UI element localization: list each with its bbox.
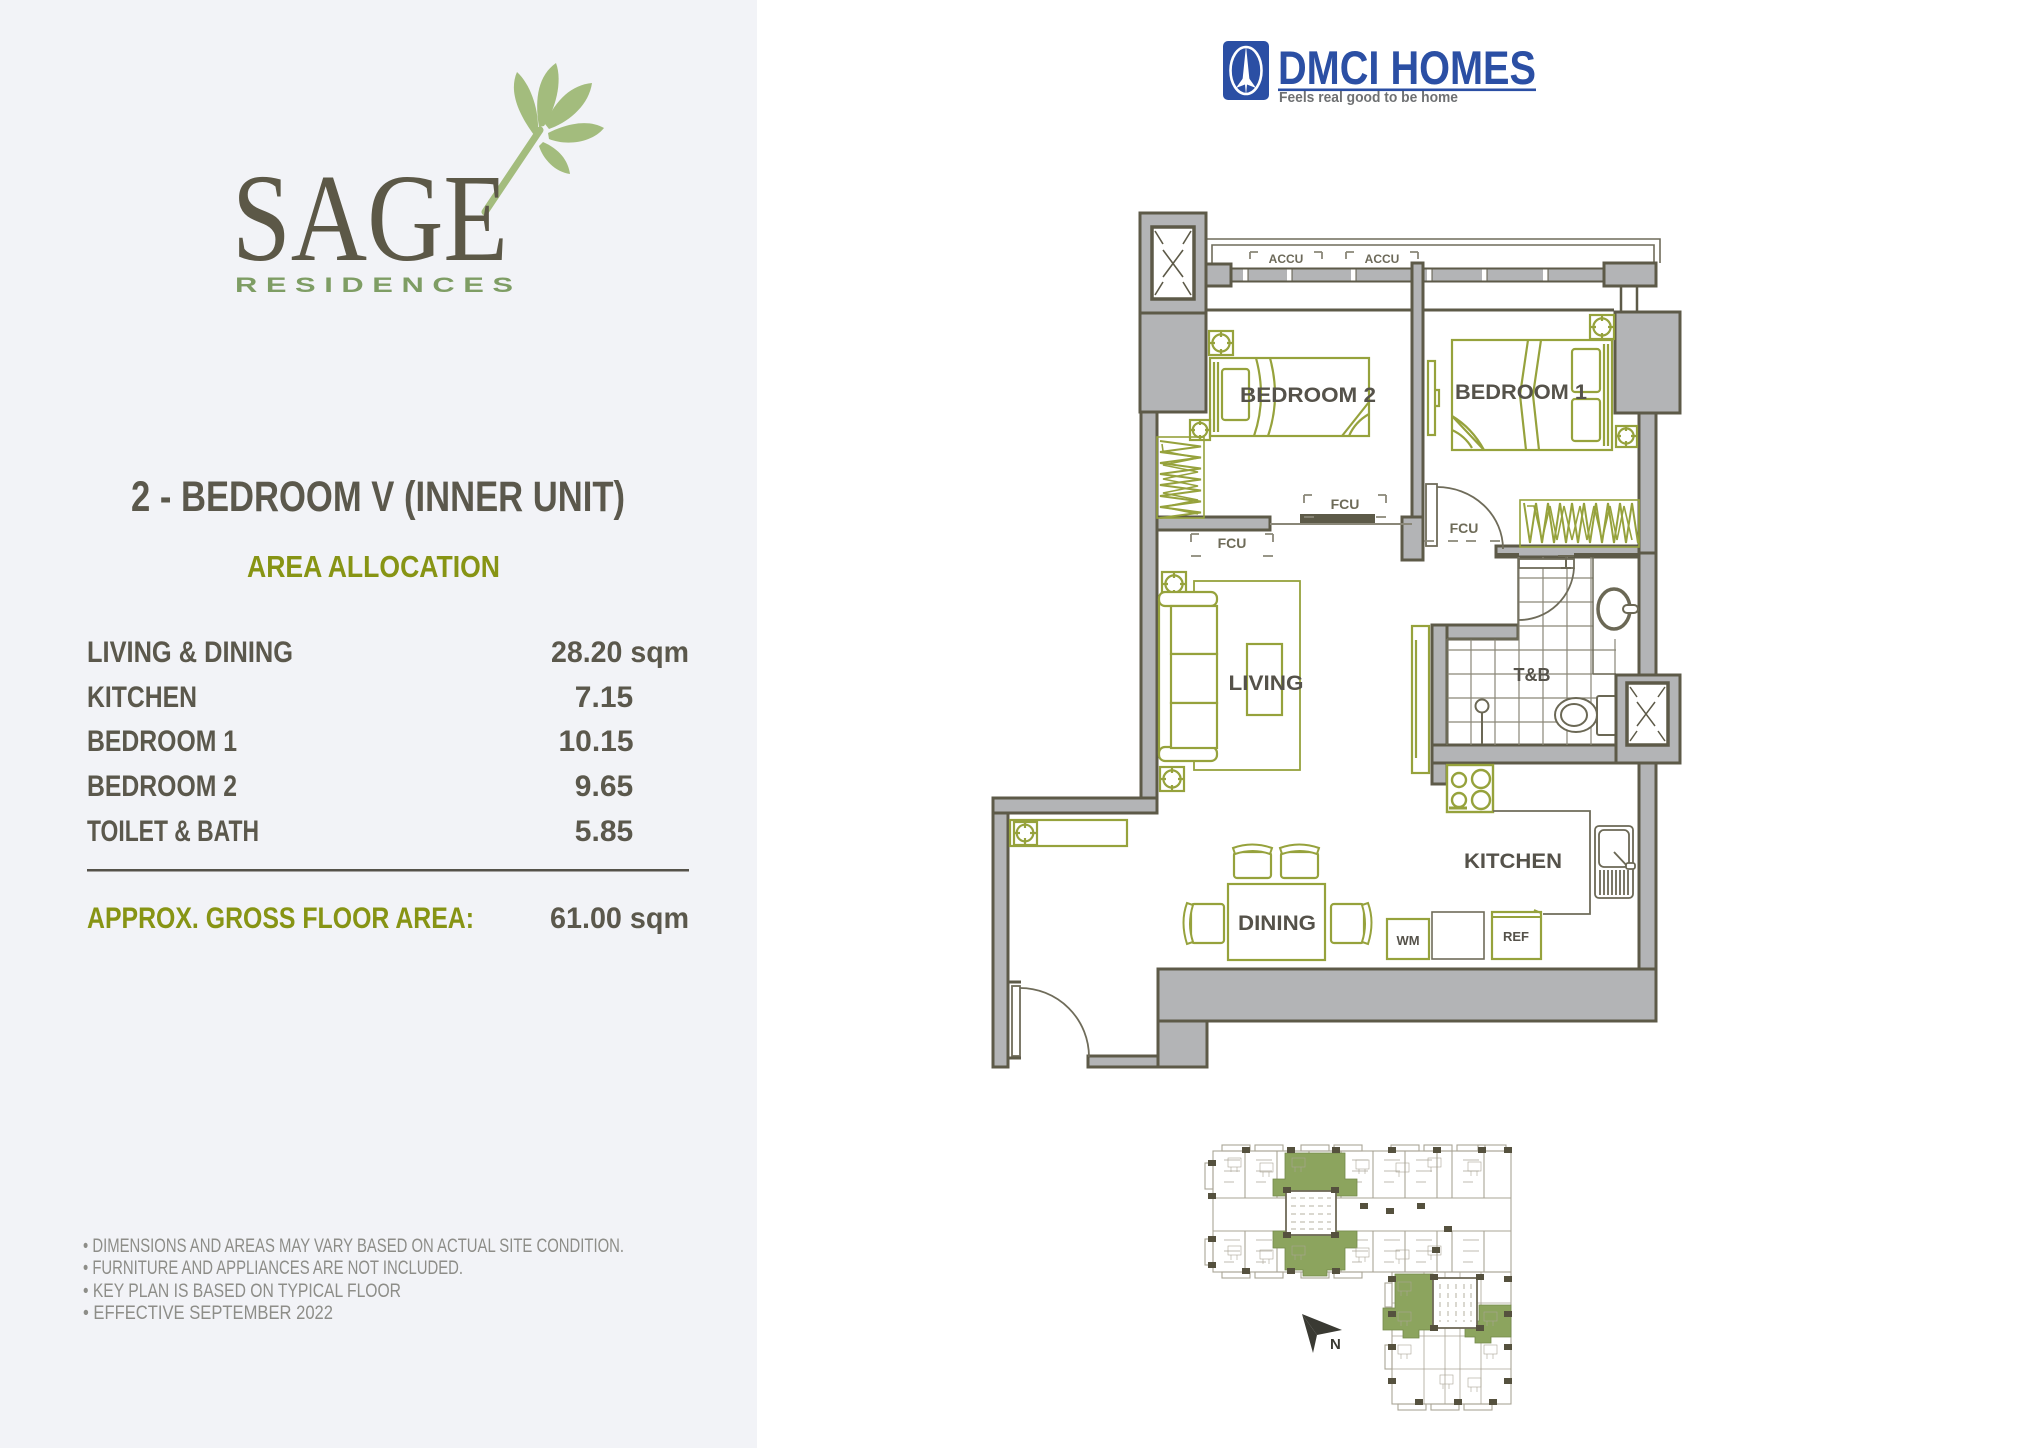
svg-text:• KEY PLAN IS BASED ON TYPICAL: • KEY PLAN IS BASED ON TYPICAL FLOOR <box>83 1281 401 1302</box>
svg-text:FCU: FCU <box>1218 535 1247 551</box>
svg-text:2 - BEDROOM V (INNER UNIT): 2 - BEDROOM V (INNER UNIT) <box>131 473 625 521</box>
svg-text:BEDROOM 1: BEDROOM 1 <box>87 725 237 758</box>
svg-text:LIVING & DINING: LIVING & DINING <box>87 636 293 669</box>
svg-text:9.65: 9.65 <box>575 770 633 803</box>
svg-text:• FURNITURE AND APPLIANCES ARE: • FURNITURE AND APPLIANCES ARE NOT INCLU… <box>83 1258 463 1279</box>
svg-text:5.85: 5.85 <box>575 815 633 848</box>
svg-text:BEDROOM 2: BEDROOM 2 <box>87 770 237 803</box>
svg-text:DMCI HOMES: DMCI HOMES <box>1278 41 1536 94</box>
svg-text:BEDROOM 1: BEDROOM 1 <box>1455 381 1587 404</box>
svg-text:FCU: FCU <box>1450 520 1479 536</box>
svg-text:DINING: DINING <box>1238 912 1316 935</box>
svg-text:61.00 sqm: 61.00 sqm <box>550 902 689 935</box>
svg-text:KITCHEN: KITCHEN <box>1464 850 1562 873</box>
svg-text:N: N <box>1330 1336 1341 1353</box>
svg-text:10.15: 10.15 <box>558 725 633 758</box>
svg-text:7.15: 7.15 <box>575 681 633 714</box>
svg-text:APPROX. GROSS FLOOR AREA:: APPROX. GROSS FLOOR AREA: <box>87 902 474 935</box>
svg-text:R E S I D E N C E S: R E S I D E N C E S <box>235 274 513 297</box>
svg-text:• DIMENSIONS AND AREAS MAY VAR: • DIMENSIONS AND AREAS MAY VARY BASED ON… <box>83 1236 624 1257</box>
svg-text:28.20 sqm: 28.20 sqm <box>551 636 689 669</box>
svg-text:ACCU: ACCU <box>1365 252 1400 266</box>
svg-text:ACCU: ACCU <box>1269 252 1304 266</box>
svg-text:LIVING: LIVING <box>1229 672 1304 695</box>
svg-text:WM: WM <box>1396 933 1419 948</box>
svg-text:T&B: T&B <box>1514 665 1551 685</box>
svg-text:• EFFECTIVE SEPTEMBER 2022: • EFFECTIVE SEPTEMBER 2022 <box>83 1303 333 1324</box>
svg-text:FCU: FCU <box>1331 496 1360 512</box>
svg-text:SAGE: SAGE <box>232 150 508 288</box>
svg-text:BEDROOM 2: BEDROOM 2 <box>1240 384 1376 407</box>
svg-text:REF: REF <box>1503 929 1529 944</box>
svg-text:KITCHEN: KITCHEN <box>87 681 197 714</box>
svg-text:Feels real good to be home: Feels real good to be home <box>1279 90 1458 106</box>
svg-text:TOILET & BATH: TOILET & BATH <box>87 815 259 848</box>
svg-text:AREA ALLOCATION: AREA ALLOCATION <box>247 549 500 584</box>
